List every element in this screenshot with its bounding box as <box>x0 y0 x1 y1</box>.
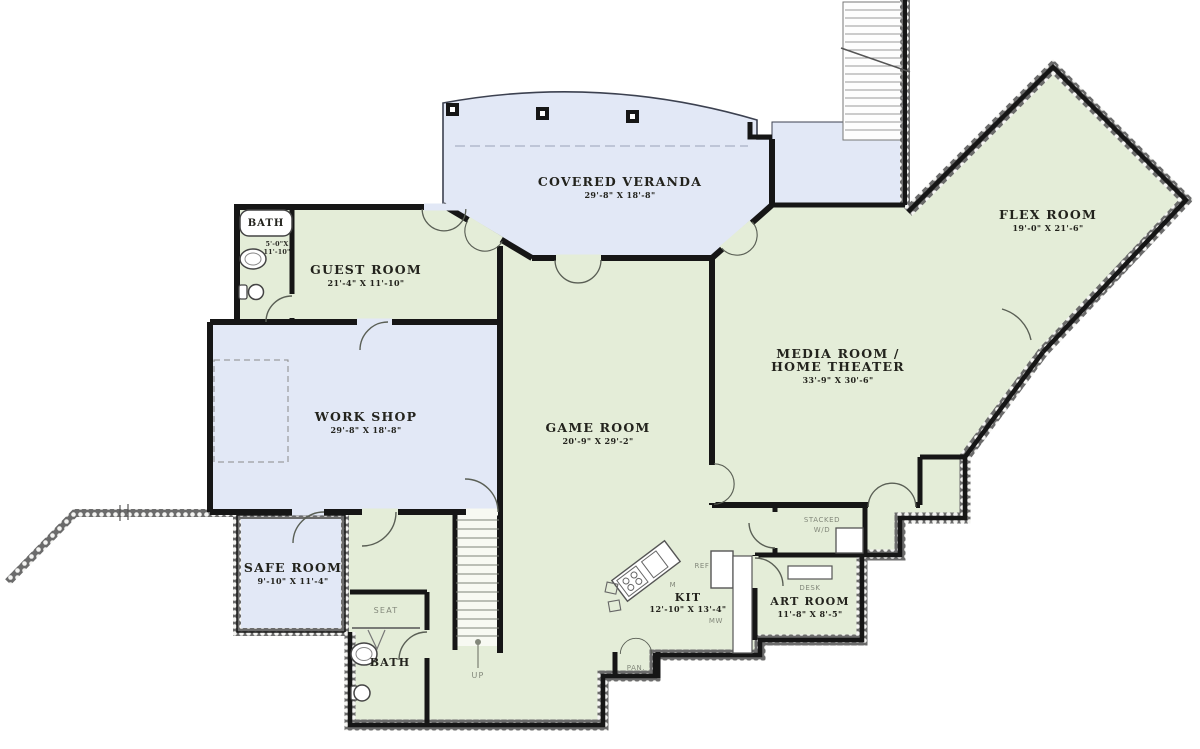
sink-lower <box>351 643 377 665</box>
bathtub <box>240 210 292 236</box>
floor-plan-drawing: COVERED VERANDA 29'-8" X 18'-8" FLEX ROO… <box>0 0 1200 749</box>
toilet-upper-tank <box>239 285 247 299</box>
toilet-lower <box>354 685 370 701</box>
interior-stairs-floor <box>456 514 499 646</box>
desk <box>788 566 832 579</box>
sink-upper <box>240 249 266 269</box>
toilet-upper <box>249 285 264 300</box>
exterior-stairs-floor <box>843 2 905 140</box>
stacked-washer-dryer <box>836 528 863 553</box>
refrigerator <box>711 551 733 588</box>
floor-plan-page: COVERED VERANDA 29'-8" X 18'-8" FLEX ROO… <box>0 0 1200 749</box>
retaining-wall <box>8 513 240 582</box>
kitchen-counter <box>733 556 752 653</box>
workshop-floor <box>210 322 500 512</box>
safe-room-floor <box>237 515 345 632</box>
